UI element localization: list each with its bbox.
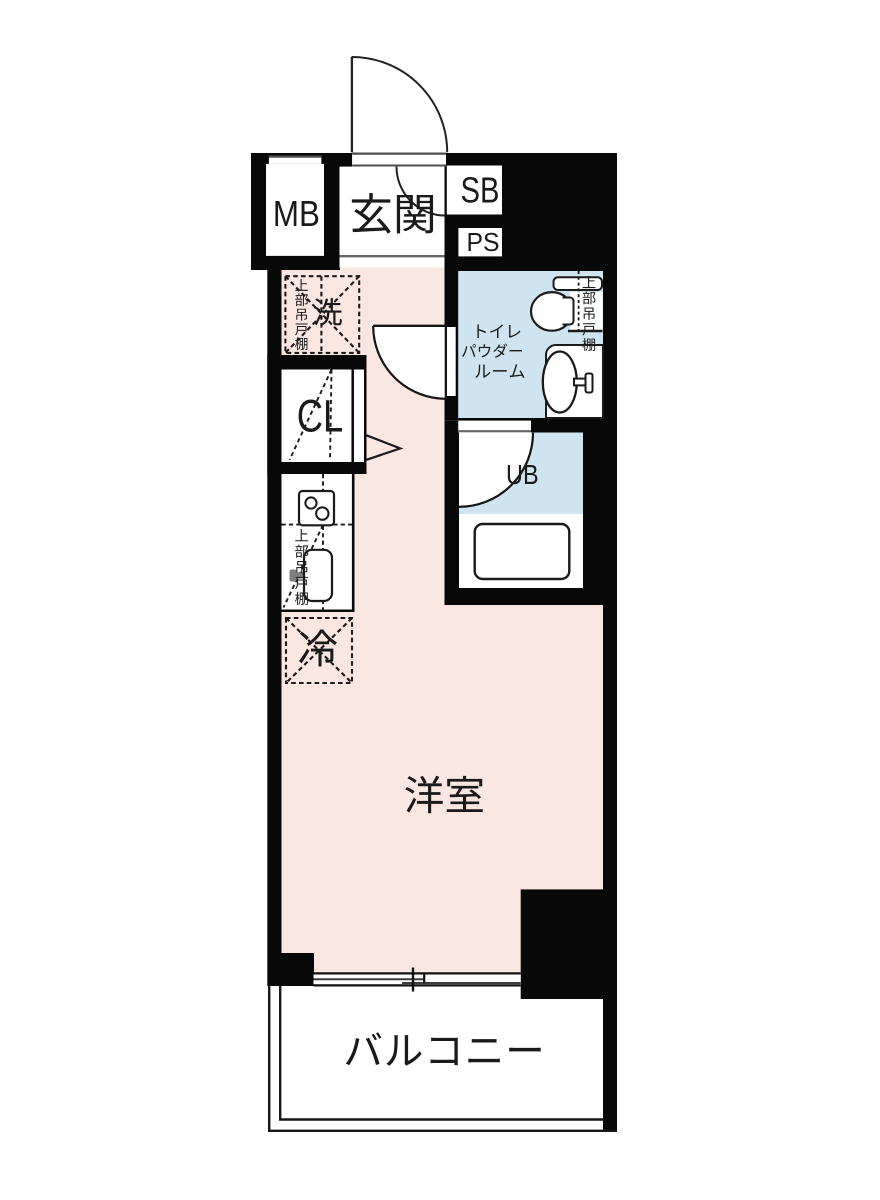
svg-text:CL: CL bbox=[297, 391, 344, 442]
svg-text:UB: UB bbox=[506, 459, 539, 490]
svg-text:MB: MB bbox=[273, 193, 320, 234]
svg-text:SB: SB bbox=[461, 170, 500, 211]
svg-text:PS: PS bbox=[467, 229, 500, 257]
